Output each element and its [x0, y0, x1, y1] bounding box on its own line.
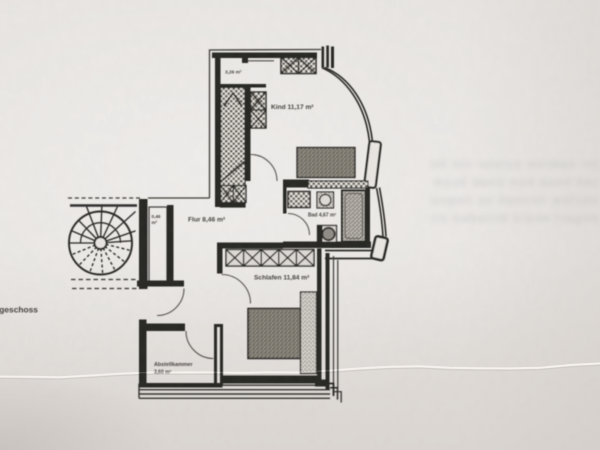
svg-text:rgeschoss: rgeschoss — [0, 305, 38, 315]
svg-text:m²: m² — [152, 220, 158, 225]
svg-text:Schlafen 11,84 m²: Schlafen 11,84 m² — [254, 275, 310, 282]
svg-text:Kind 11,17 m²: Kind 11,17 m² — [271, 104, 314, 111]
svg-text:Abstellkammer: Abstellkammer — [154, 362, 194, 368]
svg-text:3,26 m²: 3,26 m² — [225, 70, 242, 76]
svg-text:0,46: 0,46 — [152, 214, 161, 219]
svg-text:Flur 8,46 m²: Flur 8,46 m² — [188, 217, 226, 224]
svg-text:Bad 4,67 m²: Bad 4,67 m² — [308, 213, 336, 219]
svg-text:3,60 m²: 3,60 m² — [154, 370, 172, 376]
